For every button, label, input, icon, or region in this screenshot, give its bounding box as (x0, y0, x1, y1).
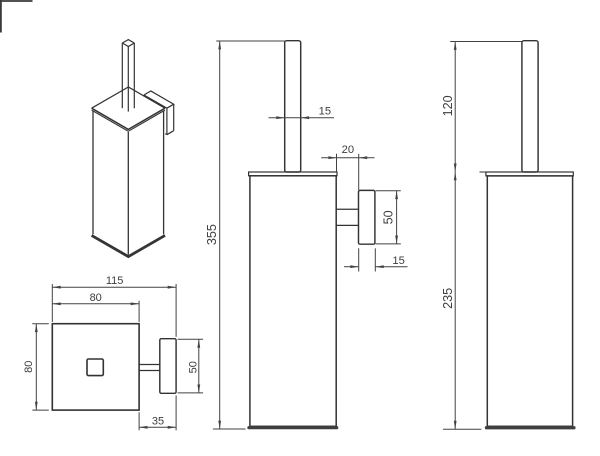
svg-text:80: 80 (90, 292, 102, 304)
svg-text:50: 50 (187, 361, 199, 373)
svg-text:15: 15 (319, 105, 331, 117)
svg-text:20: 20 (342, 144, 354, 156)
svg-text:35: 35 (152, 415, 164, 427)
svg-text:80: 80 (23, 361, 35, 373)
svg-text:235: 235 (441, 288, 455, 309)
svg-text:15: 15 (392, 255, 404, 267)
svg-text:50: 50 (382, 210, 396, 224)
svg-text:120: 120 (441, 95, 455, 116)
svg-text:355: 355 (205, 224, 219, 245)
svg-text:115: 115 (106, 275, 124, 287)
